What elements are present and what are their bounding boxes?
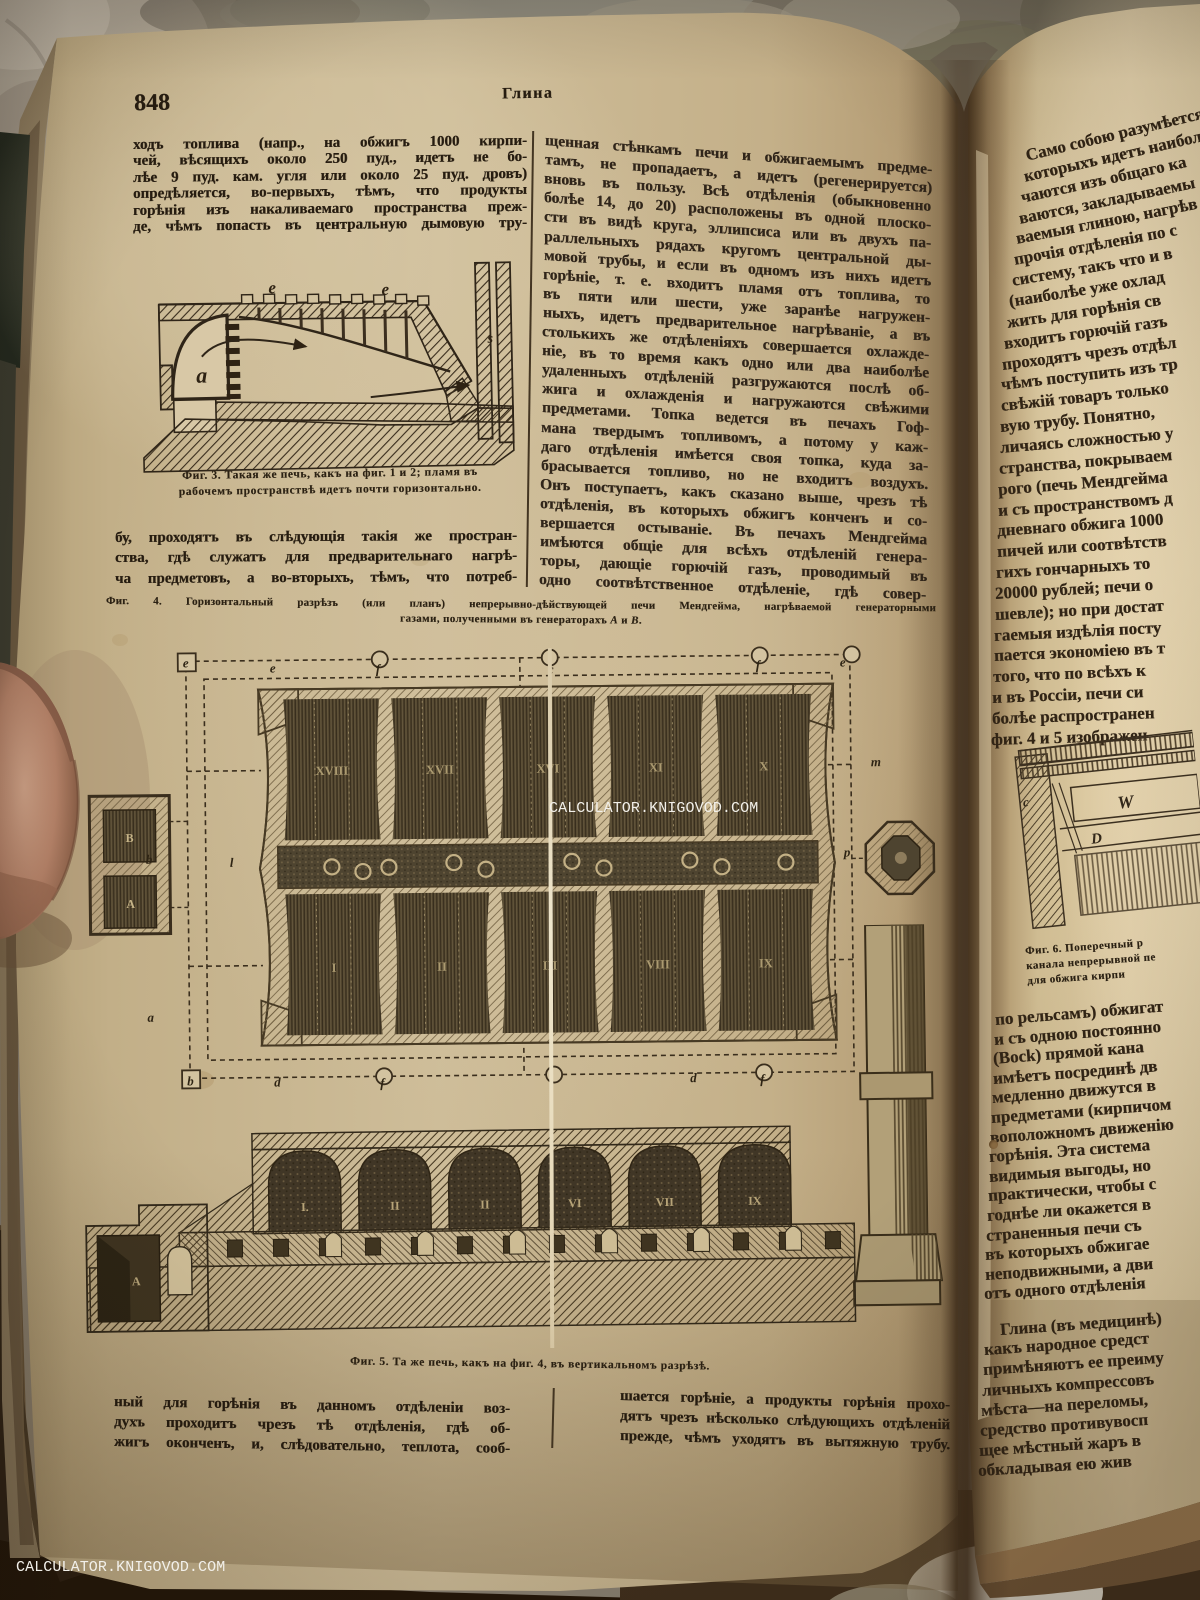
svg-text:XVIII: XVIII — [316, 764, 349, 778]
svg-text:s: s — [486, 332, 493, 347]
svg-text:e: e — [268, 278, 276, 297]
svg-text:XI: XI — [649, 760, 663, 774]
svg-text:X: X — [759, 759, 768, 773]
svg-text:IX: IX — [748, 1194, 762, 1208]
svg-text:a: a — [196, 363, 208, 388]
svg-text:e: e — [381, 280, 389, 299]
svg-text:I.: I. — [301, 1200, 309, 1214]
svg-text:e: e — [840, 654, 846, 669]
svg-text:II: II — [480, 1197, 490, 1211]
svg-text:l: l — [230, 855, 234, 870]
svg-text:e: e — [183, 655, 189, 670]
svg-text:II: II — [390, 1199, 400, 1213]
svg-text:XVII: XVII — [426, 763, 454, 777]
svg-text:D: D — [1089, 831, 1103, 848]
svg-text:VII: VII — [656, 1195, 675, 1209]
svg-text:W: W — [1116, 791, 1136, 813]
svg-text:b: b — [146, 852, 153, 867]
svg-text:p: p — [843, 844, 851, 859]
svg-text:e: e — [270, 660, 276, 675]
svg-text:m: m — [871, 754, 881, 769]
svg-text:B: B — [126, 831, 134, 845]
svg-text:VI: VI — [568, 1196, 582, 1210]
svg-text:A: A — [132, 1274, 141, 1288]
svg-text:A: A — [126, 897, 135, 911]
